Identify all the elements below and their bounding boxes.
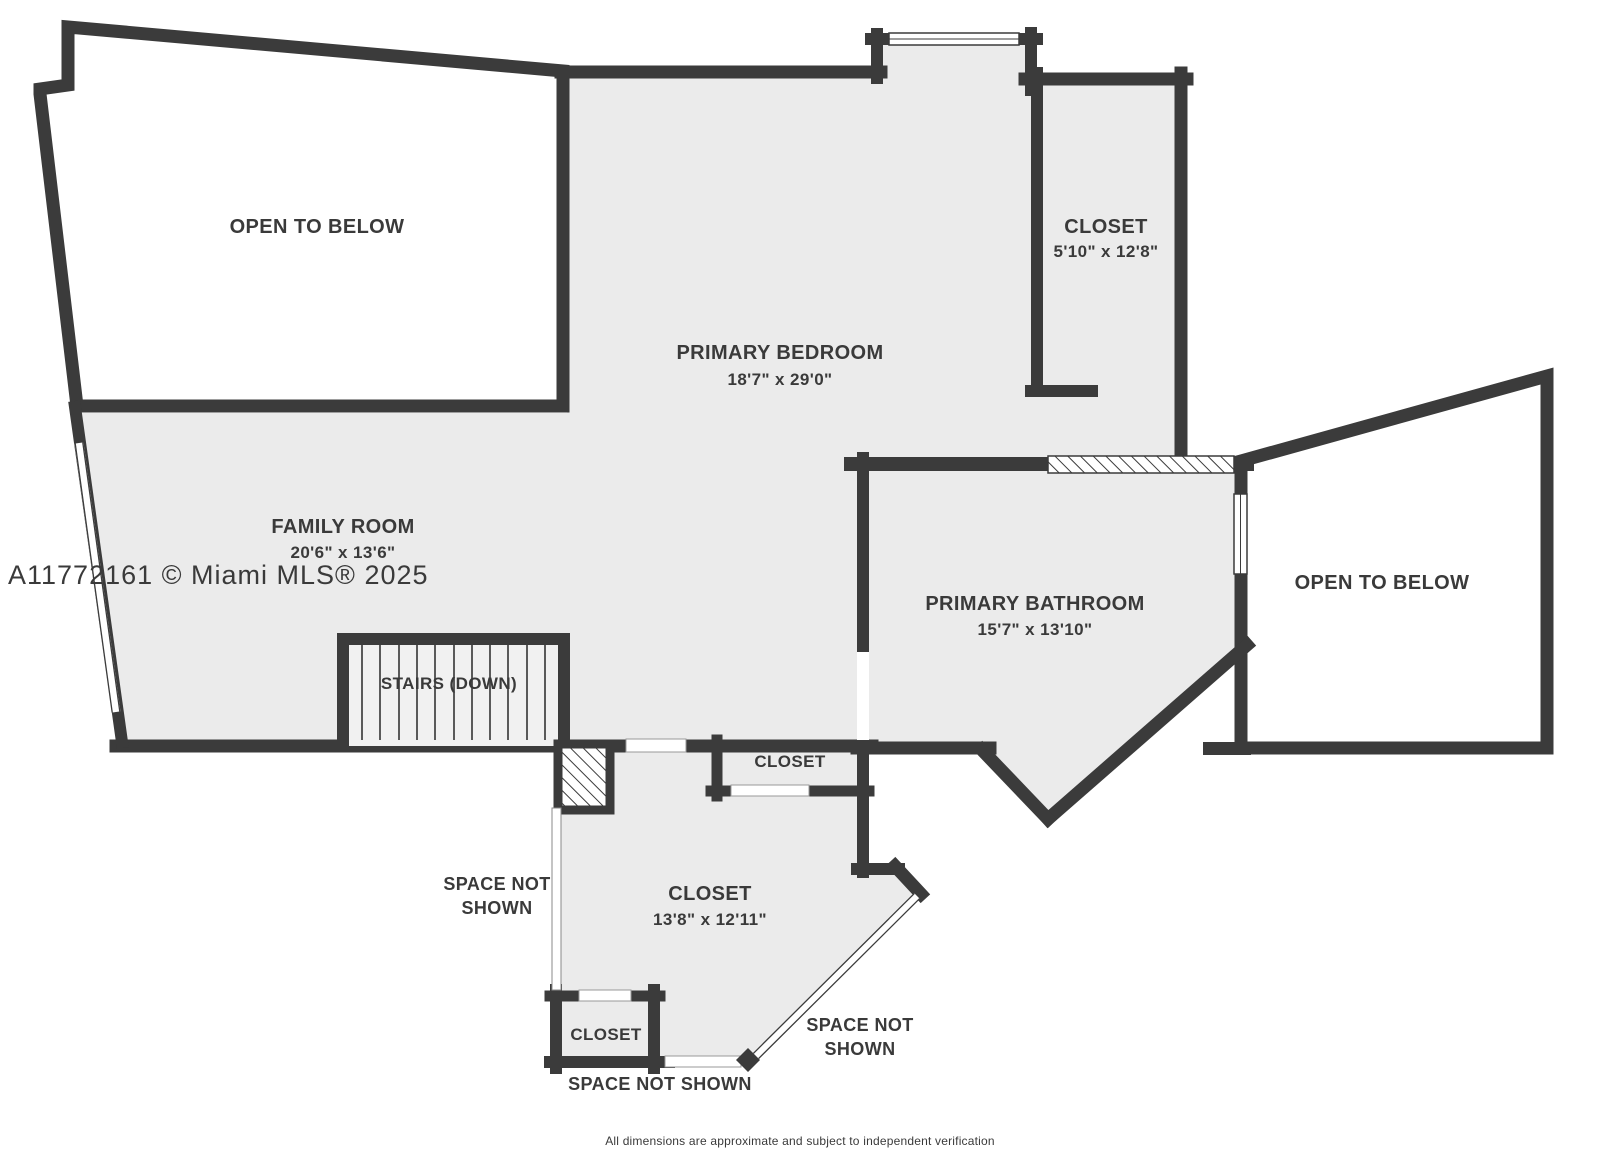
- bathroom-hatched-wall: [1048, 456, 1234, 473]
- space-not-shown-right-line1: SPACE NOT: [806, 1015, 913, 1035]
- closet-bottom-door-opening: [579, 990, 631, 1001]
- closet-large-label: CLOSET: [668, 883, 752, 905]
- open-below-right-label: OPEN TO BELOW: [1295, 572, 1470, 594]
- primary-bathroom-dims: 15'7" x 13'10": [978, 620, 1093, 639]
- space-not-shown-left-line1: SPACE NOT: [443, 874, 550, 894]
- closet-tr-label: CLOSET: [1064, 216, 1148, 238]
- closet-bottom-label: CLOSET: [570, 1025, 642, 1044]
- floorplan-page: OPEN TO BELOW PRIMARY BEDROOM 18'7" x 29…: [0, 0, 1600, 1173]
- mls-watermark: A11772161 © Miami MLS® 2025: [8, 560, 429, 590]
- disclaimer-text: All dimensions are approximate and subje…: [605, 1134, 995, 1148]
- family-door-opening: [626, 739, 686, 752]
- open-below-tl-label: OPEN TO BELOW: [230, 216, 405, 238]
- closet-hall-door-opening: [731, 785, 809, 796]
- space-not-shown-bottom: SPACE NOT SHOWN: [568, 1074, 752, 1094]
- hatched-chase: [558, 744, 610, 810]
- closet-top-right-floor: [1031, 73, 1187, 468]
- closet-large-dims: 13'8" x 12'11": [653, 910, 767, 929]
- bathroom-door-opening: [857, 652, 869, 740]
- bathroom-floor: [857, 458, 1247, 820]
- primary-bedroom-dims: 18'7" x 29'0": [727, 370, 832, 389]
- closet-large-opening: [665, 1056, 741, 1067]
- closet-tr-dims: 5'10" x 12'8": [1053, 242, 1158, 261]
- family-room-label: FAMILY ROOM: [271, 516, 414, 538]
- primary-bathroom-label: PRIMARY BATHROOM: [925, 593, 1144, 615]
- open-below-right-outline: [1241, 376, 1547, 748]
- open-below-right-bottom-wall-stub: [1203, 742, 1251, 755]
- space-not-shown-right-line2: SHOWN: [825, 1039, 896, 1059]
- space-not-shown-left-line2: SHOWN: [462, 898, 533, 918]
- floorplan-drawing: OPEN TO BELOW PRIMARY BEDROOM 18'7" x 29…: [0, 0, 1600, 1173]
- primary-bedroom-label: PRIMARY BEDROOM: [676, 342, 883, 364]
- closet-large-left-window: [552, 808, 561, 990]
- closet-hall-label: CLOSET: [754, 752, 826, 771]
- stairs-label: STAIRS (DOWN): [381, 674, 517, 693]
